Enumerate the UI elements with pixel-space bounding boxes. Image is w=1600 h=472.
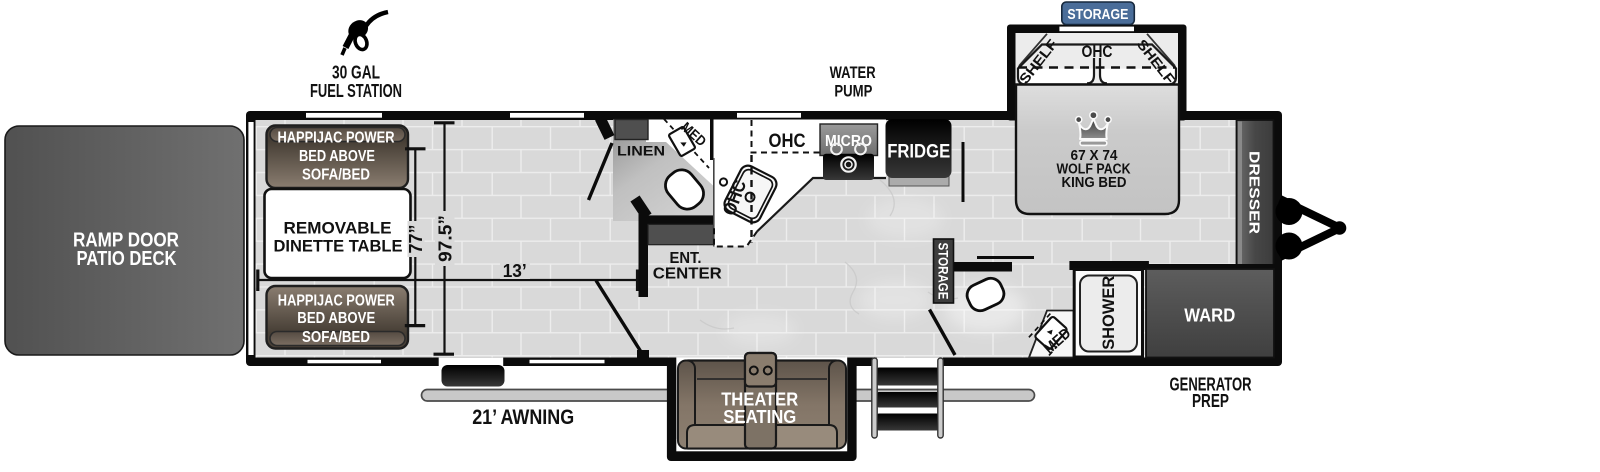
svg-text:WARD: WARD: [1184, 305, 1235, 326]
svg-text:SHOWER: SHOWER: [1099, 276, 1118, 350]
svg-text:LINEN: LINEN: [617, 143, 665, 158]
svg-text:BED ABOVE: BED ABOVE: [299, 148, 375, 165]
svg-text:BED ABOVE: BED ABOVE: [297, 310, 375, 327]
svg-text:HAPPIJAC POWER: HAPPIJAC POWER: [278, 292, 395, 309]
svg-text:KING BED: KING BED: [1062, 175, 1127, 191]
svg-text:SEATING: SEATING: [723, 406, 796, 427]
svg-text:FRIDGE: FRIDGE: [887, 142, 950, 163]
svg-text:PREP: PREP: [1192, 390, 1229, 411]
svg-text:FUEL STATION: FUEL STATION: [310, 81, 402, 101]
svg-text:21’ AWNING: 21’ AWNING: [472, 405, 574, 429]
svg-text:DRESSER: DRESSER: [1246, 151, 1263, 234]
svg-text:WATER: WATER: [830, 63, 876, 82]
svg-text:PUMP: PUMP: [834, 81, 872, 100]
svg-text:DINETTE TABLE: DINETTE TABLE: [274, 237, 403, 256]
svg-text:OHC: OHC: [769, 131, 806, 152]
svg-text:SOFA/BED: SOFA/BED: [302, 329, 370, 346]
svg-text:13’: 13’: [503, 260, 527, 281]
svg-text:REMOVABLE: REMOVABLE: [284, 219, 392, 238]
svg-text:HAPPIJAC POWER: HAPPIJAC POWER: [278, 129, 395, 146]
svg-text:STORAGE: STORAGE: [1067, 6, 1128, 23]
svg-text:CENTER: CENTER: [653, 265, 722, 282]
svg-text:SOFA/BED: SOFA/BED: [302, 167, 370, 184]
svg-text:PATIO DECK: PATIO DECK: [77, 248, 177, 270]
svg-text:77”: 77”: [406, 225, 426, 254]
svg-text:97.5”: 97.5”: [435, 215, 455, 262]
svg-text:STORAGE: STORAGE: [935, 243, 951, 300]
svg-text:30 GAL: 30 GAL: [332, 63, 380, 83]
svg-text:OHC: OHC: [1082, 42, 1113, 61]
